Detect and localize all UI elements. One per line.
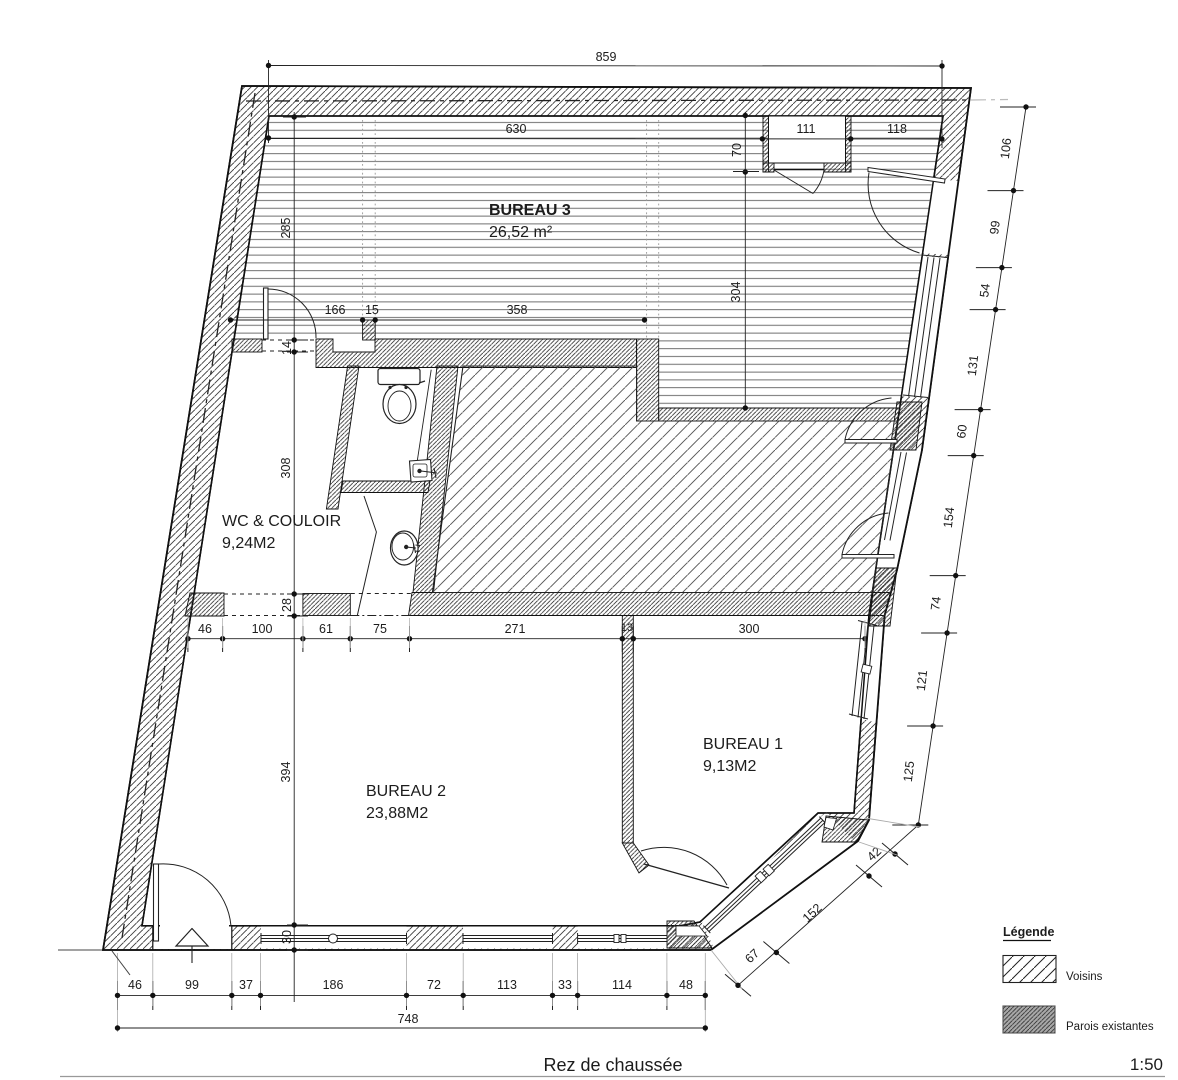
svg-text:121: 121: [914, 669, 930, 691]
svg-text:131: 131: [965, 354, 981, 376]
svg-text:106: 106: [998, 137, 1014, 159]
svg-text:113: 113: [497, 978, 517, 992]
svg-text:13: 13: [621, 622, 633, 634]
svg-text:125: 125: [901, 760, 917, 782]
svg-text:26,52 m²: 26,52 m²: [489, 224, 553, 241]
svg-text:74: 74: [928, 596, 944, 612]
svg-text:304: 304: [729, 282, 743, 303]
svg-text:394: 394: [279, 762, 293, 783]
svg-text:271: 271: [505, 622, 526, 636]
svg-text:BUREAU 1: BUREAU 1: [703, 736, 783, 753]
svg-text:99: 99: [185, 978, 199, 992]
svg-text:Légende: Légende: [1003, 925, 1054, 939]
svg-text:630: 630: [506, 122, 527, 136]
svg-text:100: 100: [252, 622, 273, 636]
svg-text:Rez de chaussée: Rez de chaussée: [543, 1055, 682, 1075]
svg-text:14: 14: [280, 341, 294, 355]
svg-text:23,88M2: 23,88M2: [366, 805, 428, 822]
svg-text:111: 111: [796, 122, 815, 136]
svg-text:61: 61: [319, 622, 333, 636]
svg-text:186: 186: [323, 978, 344, 992]
svg-text:166: 166: [325, 303, 346, 317]
svg-text:72: 72: [427, 978, 441, 992]
svg-text:46: 46: [128, 978, 142, 992]
svg-text:859: 859: [596, 50, 617, 64]
svg-text:33: 33: [558, 978, 572, 992]
svg-text:748: 748: [398, 1012, 419, 1026]
svg-text:BUREAU 3: BUREAU 3: [489, 202, 571, 219]
svg-text:118: 118: [887, 122, 907, 136]
svg-text:15: 15: [365, 303, 379, 317]
svg-text:46: 46: [198, 622, 212, 636]
svg-text:99: 99: [987, 220, 1003, 236]
svg-text:54: 54: [977, 283, 993, 299]
svg-text:285: 285: [279, 218, 293, 239]
svg-text:WC & COULOIR: WC & COULOIR: [222, 513, 341, 530]
svg-text:300: 300: [739, 622, 760, 636]
svg-text:9,24M2: 9,24M2: [222, 535, 275, 552]
svg-text:358: 358: [507, 303, 528, 317]
svg-text:30: 30: [280, 930, 294, 944]
svg-text:60: 60: [954, 424, 970, 440]
svg-text:154: 154: [941, 506, 957, 528]
svg-text:114: 114: [612, 978, 632, 992]
svg-text:37: 37: [239, 978, 253, 992]
svg-text:BUREAU 2: BUREAU 2: [366, 783, 446, 800]
svg-text:1:50: 1:50: [1130, 1055, 1163, 1074]
svg-text:70: 70: [730, 143, 744, 157]
svg-text:75: 75: [373, 622, 387, 636]
svg-text:48: 48: [679, 978, 693, 992]
svg-text:Parois existantes: Parois existantes: [1066, 1021, 1154, 1033]
svg-text:308: 308: [279, 458, 293, 479]
svg-text:9,13M2: 9,13M2: [703, 758, 756, 775]
svg-text:Voisins: Voisins: [1066, 971, 1103, 983]
svg-text:28: 28: [280, 598, 294, 612]
